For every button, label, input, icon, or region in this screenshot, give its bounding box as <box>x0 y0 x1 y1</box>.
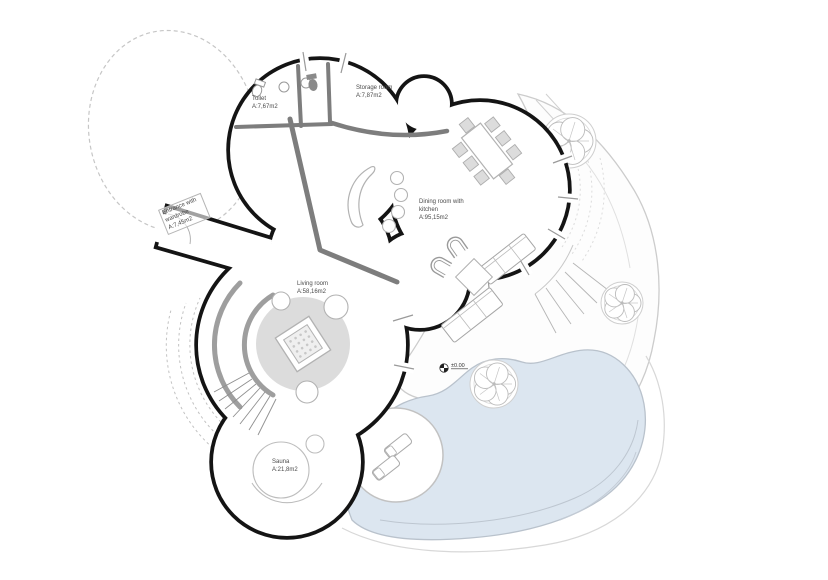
room-area: A:7,87m2 <box>356 93 406 101</box>
sink-icon <box>279 82 289 92</box>
tree-icon <box>470 360 518 408</box>
tree-icon <box>601 282 643 324</box>
room-label-sauna: Sauna A:21,8m2 <box>272 459 312 475</box>
room-area: A:58,16m2 <box>297 289 341 297</box>
room-label-toilet: Toilet A:7,67m2 <box>252 96 292 112</box>
room-label-storage: Storage room A:7,87m2 <box>356 85 406 101</box>
room-name: Dining room with kitchen <box>419 199 471 215</box>
room-label-dining: Dining room with kitchen A:95,15m2 <box>419 199 471 222</box>
floor-plan-canvas: ±0.00 <box>0 0 828 580</box>
room-area: A:7,67m2 <box>252 104 292 112</box>
room-area: A:21,8m2 <box>272 467 312 475</box>
floor-plan-page: ±0.00 Toilet A:7,67m2 Storage room A:7,8… <box>0 0 828 580</box>
room-label-living: Living room A:58,16m2 <box>297 281 341 297</box>
room-area: A:95,15m2 <box>419 215 471 223</box>
room-name: Toilet <box>252 96 292 104</box>
room-name: Living room <box>297 281 341 289</box>
level-marker-text: ±0.00 <box>451 363 465 369</box>
room-name: Storage room <box>356 85 406 93</box>
room-name: Sauna <box>272 459 312 467</box>
